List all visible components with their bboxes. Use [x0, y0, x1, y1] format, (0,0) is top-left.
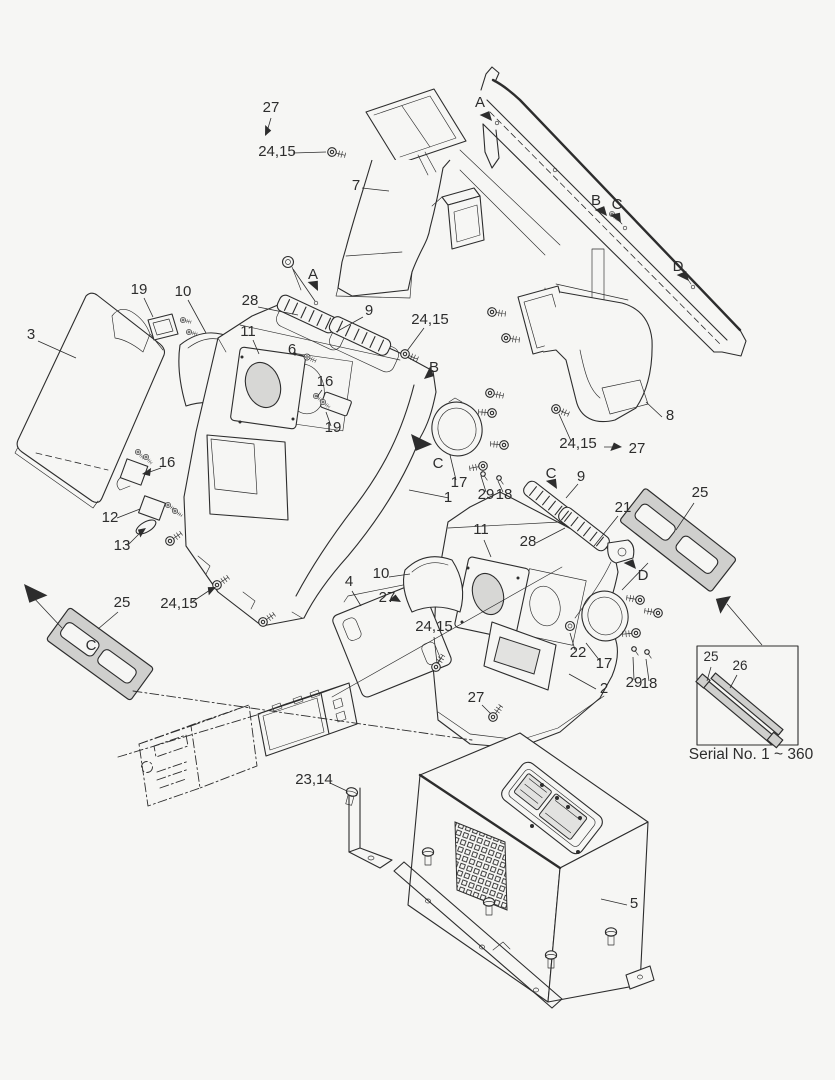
- callout-28: 28: [242, 292, 259, 309]
- lower-panel-5: [349, 733, 654, 1008]
- callout-A: A: [308, 266, 318, 283]
- callout-25: 25: [692, 484, 709, 501]
- parts-diagram-page: 2724,157ABCD31910281169A24,15B1619161213…: [0, 0, 835, 1080]
- callout-24-15: 24,15: [415, 618, 453, 635]
- callout-26: 26: [732, 658, 747, 673]
- callout-B: B: [591, 192, 601, 209]
- callout-13: 13: [114, 537, 131, 554]
- callout-D: D: [638, 567, 649, 584]
- callout-21: 21: [615, 499, 632, 516]
- callout-18: 18: [496, 486, 513, 503]
- callout-9: 9: [577, 468, 585, 485]
- callout-17: 17: [451, 474, 468, 491]
- bracket-19-left: [148, 314, 178, 340]
- callout-24-15: 24,15: [258, 143, 296, 160]
- callout-C: C: [433, 455, 444, 472]
- callout-9: 9: [365, 302, 373, 319]
- callout-10: 10: [373, 565, 390, 582]
- callout-19: 19: [325, 419, 342, 436]
- callout-11: 11: [473, 521, 489, 538]
- callout-28: 28: [520, 533, 537, 550]
- callout-A: A: [475, 94, 485, 111]
- pad-13: [134, 517, 158, 537]
- callout-5: 5: [630, 895, 638, 912]
- callout-6: 6: [288, 341, 296, 358]
- callout-27: 27: [379, 589, 396, 606]
- callout-16: 16: [317, 373, 334, 390]
- callout-18: 18: [641, 675, 658, 692]
- callout-10: 10: [175, 283, 192, 300]
- inset-caption: Serial No. 1 ~ 360: [689, 746, 814, 763]
- bracket-12: [139, 496, 166, 520]
- callout-24-15: 24,15: [160, 595, 198, 612]
- latch-16: [117, 459, 148, 490]
- pad-10-right: [404, 557, 463, 612]
- callout-C: C: [86, 637, 97, 654]
- callout-24-15: 24,15: [559, 435, 597, 452]
- radio-sleeve: [258, 683, 357, 756]
- callout-25: 25: [114, 594, 131, 611]
- callout-3: 3: [27, 326, 35, 343]
- bezel-25-left: [46, 607, 154, 700]
- callout-B: B: [429, 359, 439, 376]
- callout-23-14: 23,14: [295, 771, 333, 788]
- callout-C: C: [546, 465, 557, 482]
- callout-29: 29: [478, 486, 495, 503]
- callout-19: 19: [131, 281, 148, 298]
- callout-11: 11: [240, 323, 256, 340]
- callout-22: 22: [570, 644, 587, 661]
- callout-25: 25: [703, 649, 718, 664]
- callout-4: 4: [345, 573, 353, 590]
- callout-27: 27: [468, 689, 485, 706]
- callout-17: 17: [596, 655, 613, 672]
- callout-27: 27: [263, 99, 280, 116]
- callout-2: 2: [600, 680, 608, 697]
- rear-duct-8: [518, 284, 652, 422]
- callout-1: 1: [444, 489, 452, 506]
- callout-27: 27: [629, 440, 646, 457]
- callout-12: 12: [102, 509, 119, 526]
- callout-C: C: [612, 196, 623, 213]
- console-2: [433, 479, 634, 748]
- callout-D: D: [673, 258, 684, 275]
- callout-7: 7: [352, 177, 360, 194]
- exploded-view-drawing: 2724,157ABCD31910281169A24,15B1619161213…: [0, 0, 835, 1080]
- callout-24-15: 24,15: [411, 311, 449, 328]
- callout-16: 16: [159, 454, 176, 471]
- callout-8: 8: [666, 407, 674, 424]
